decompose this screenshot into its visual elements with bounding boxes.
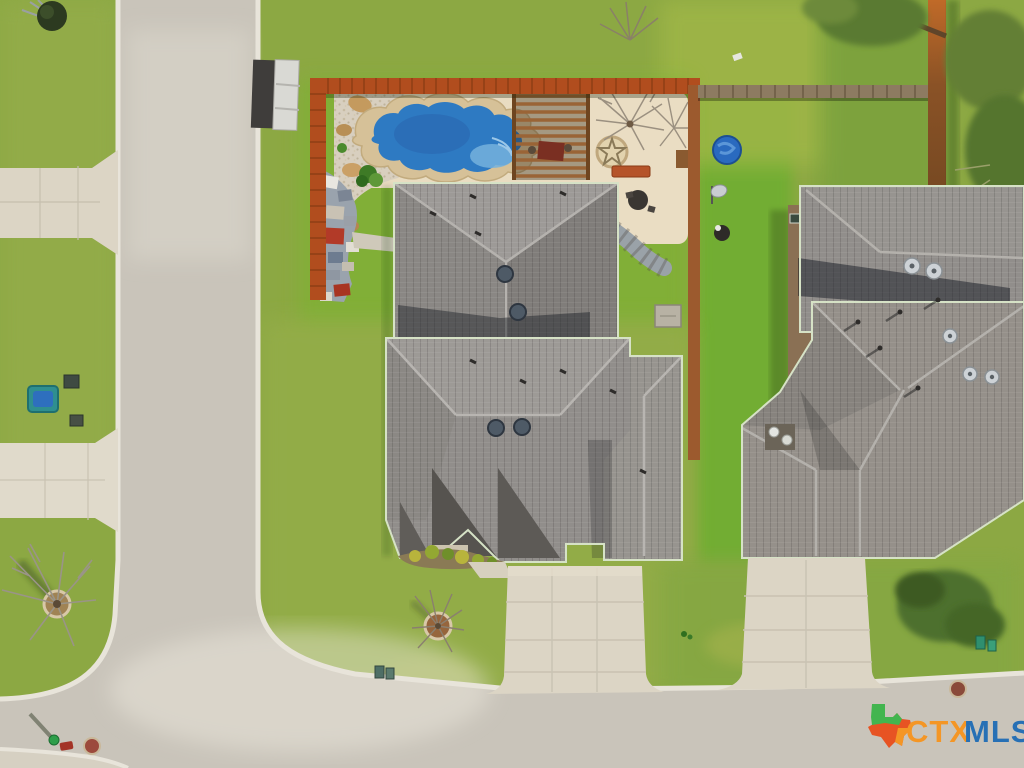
tree-trunk [627,121,634,128]
utility-box [386,668,394,679]
shrub [425,545,439,559]
vent-pipe [856,320,861,325]
patio-chair [528,146,536,154]
turbine-hub [990,375,994,379]
shrub [455,550,469,564]
vent-pipe [916,386,921,391]
playset-mat [33,391,53,407]
turbine-hub [948,334,952,338]
roof-vent-round [488,420,504,436]
neighbor-fence-row [698,85,946,98]
yard-marker [681,631,687,637]
roof-vent-round [514,419,530,435]
playset [28,386,58,412]
flagstone [337,189,352,202]
flagstone-red [324,227,345,244]
turbine-hub [910,264,915,269]
tree-canopy-highlight [40,5,54,19]
patio-bench [612,166,650,177]
backyard-fence-left [310,78,326,300]
fence-shadow [698,98,946,101]
tree-trunk [53,600,61,608]
utility-box [375,666,384,678]
kiddie-pool [713,136,741,164]
driveway-slab [486,566,664,694]
patio-chair [564,144,572,152]
aerial-photo-stage: CTX MLS [0,0,1024,768]
patio-table [537,141,564,161]
street-light-patch-2 [128,30,250,260]
backyard-fence-top [310,78,700,94]
tree-trunk [435,623,441,629]
patio-star-inlay [597,137,627,167]
utility-box-right [976,636,985,649]
roof-vent-round [497,266,513,282]
turbine-hub [932,269,937,274]
kiddie-pool-water [713,136,741,164]
vent-pipe [936,298,941,303]
main-driveway [486,566,664,694]
storage-shed [251,60,300,131]
ac-unit-fan [782,435,792,445]
boulder [342,163,362,177]
vent-pipe [878,346,883,351]
planter-pot [676,150,690,168]
boulder [336,124,352,136]
utility-box-left-1 [64,375,79,388]
bush-canopy [895,572,945,608]
aerial-photo-canvas: CTX MLS [0,0,1024,768]
flagstone [344,216,356,226]
utility-box-right [988,640,996,651]
flagstone [325,205,344,220]
vent-pipe [898,310,903,315]
flagstone [326,270,340,280]
shed-roof-light [273,60,299,131]
ac-pad [765,424,795,450]
pergola [512,92,590,180]
roof-vent-round [510,304,526,320]
watermark-ctx: CTX [906,714,971,749]
ac-unit-fan [769,427,779,437]
shed-roof-dark [251,60,275,129]
flagstone-red [333,283,350,297]
roof-valley-shadow [588,440,612,558]
green-marker [49,735,59,745]
utility-box-left-2 [70,415,83,426]
shrub [409,550,421,562]
manhole-left [84,738,100,754]
dark-base-highlight [715,225,721,231]
main-house-rear-roof [394,183,618,345]
flagstone [342,262,354,271]
main-house-front-roof [386,338,682,562]
driveway-apron [508,566,642,576]
street-light-patch [110,628,490,752]
turbine-hub [968,372,972,376]
side-fence-right [688,85,700,460]
front-utility-boxes [375,666,394,679]
shrub [442,548,454,560]
manhole-right [950,681,966,697]
yard-marker [688,635,693,640]
fence-shadow [310,94,700,98]
flagstone [328,252,343,263]
pool-deep-end [394,114,470,154]
watermark-mls: MLS [964,714,1024,749]
